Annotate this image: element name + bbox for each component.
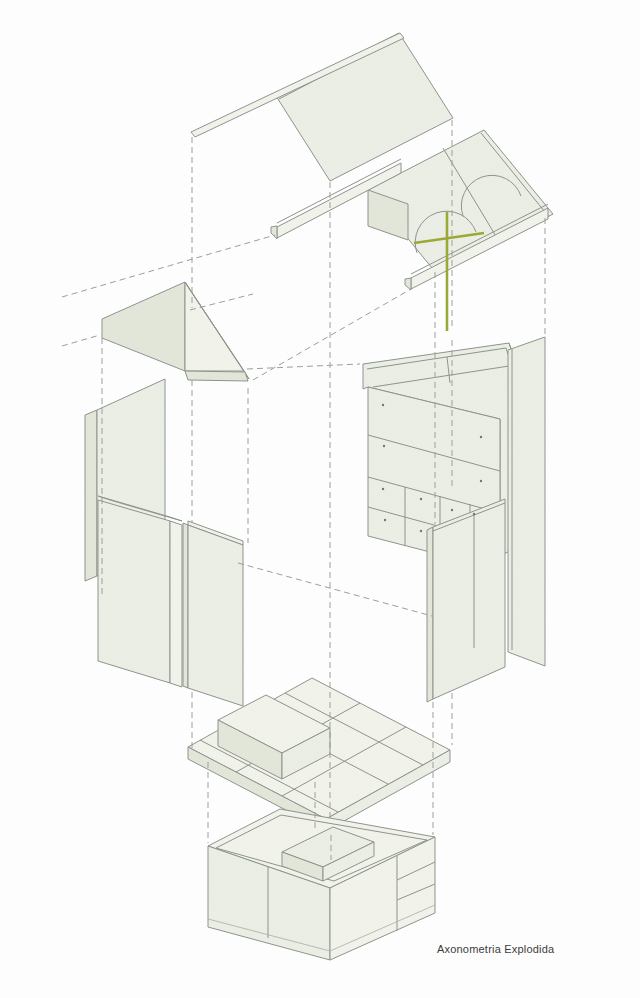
diagram-svg: Axonometria Explodida (0, 0, 640, 998)
exploded-axonometric-diagram: Axonometria Explodida (0, 0, 640, 998)
diagram-caption: Axonometria Explodida (437, 943, 555, 955)
paper-texture (0, 0, 640, 998)
